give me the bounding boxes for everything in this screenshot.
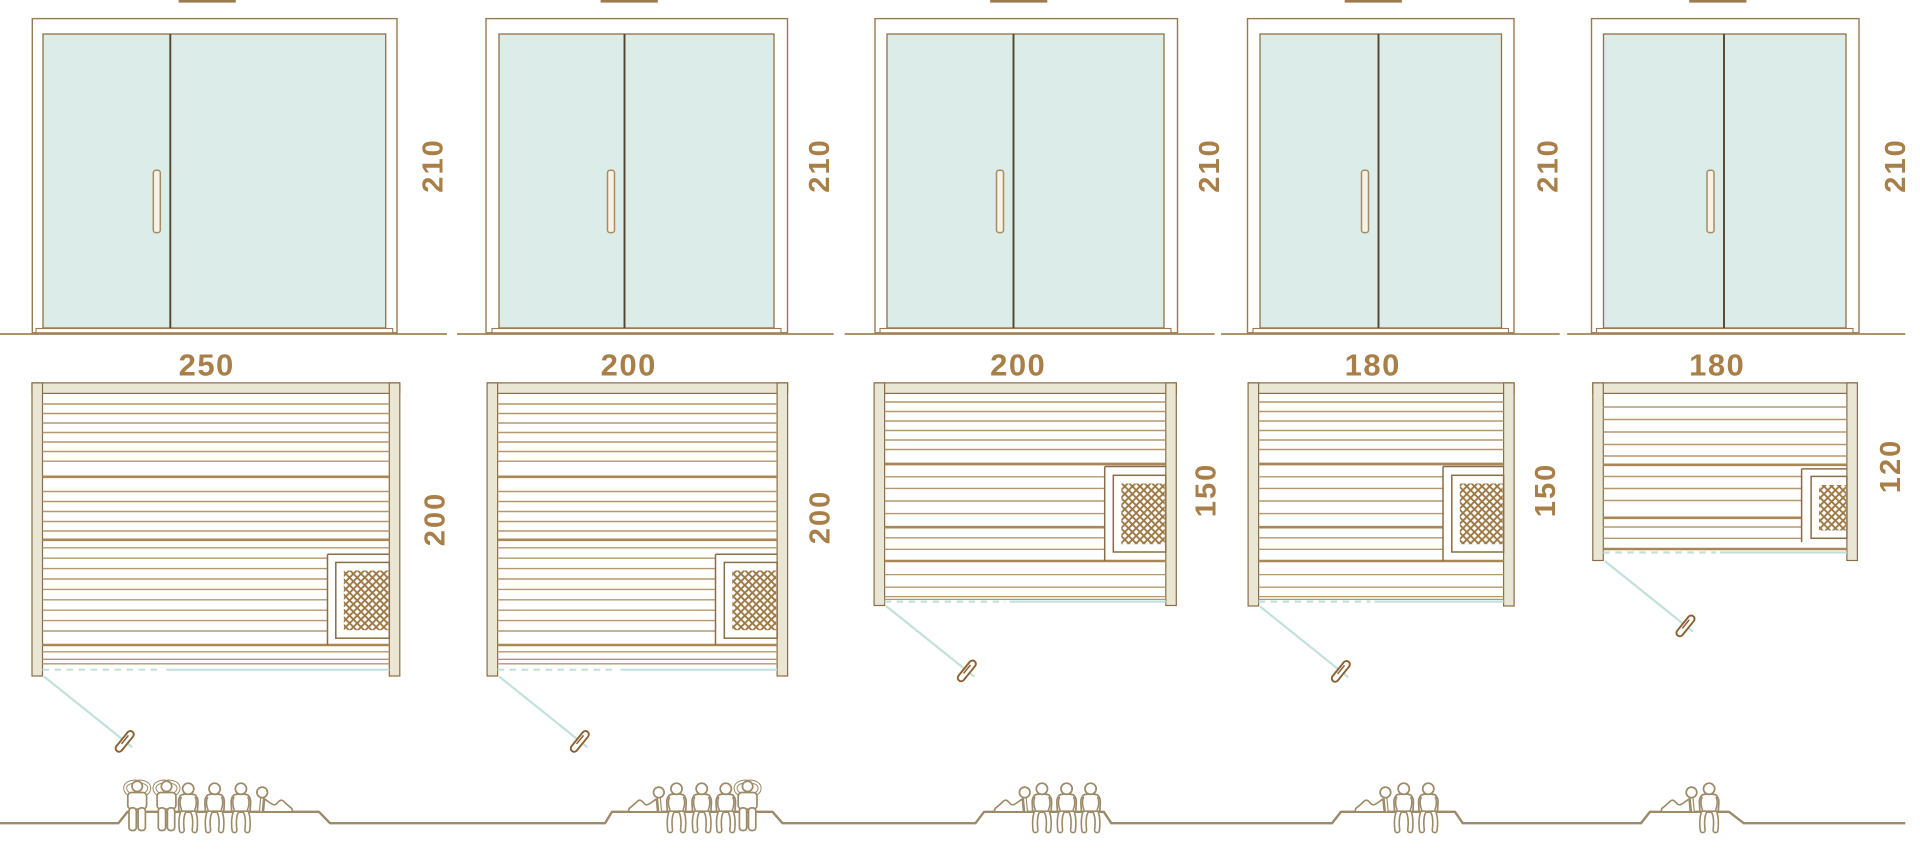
svg-text:180: 180 [1689, 348, 1745, 383]
svg-text:150: 150 [1530, 463, 1562, 517]
svg-text:200: 200 [805, 490, 837, 544]
svg-text:150: 150 [1191, 463, 1223, 517]
svg-text:200: 200 [601, 348, 657, 383]
svg-text:120: 120 [1875, 439, 1907, 493]
svg-text:210: 210 [1194, 138, 1226, 192]
svg-text:200: 200 [990, 348, 1046, 383]
svg-text:210: 210 [1533, 138, 1565, 192]
svg-text:210: 210 [804, 138, 836, 192]
svg-text:250: 250 [179, 348, 235, 383]
svg-text:180: 180 [1345, 348, 1401, 383]
svg-text:210: 210 [1880, 138, 1912, 192]
svg-text:200: 200 [420, 492, 452, 546]
svg-text:210: 210 [418, 138, 450, 192]
